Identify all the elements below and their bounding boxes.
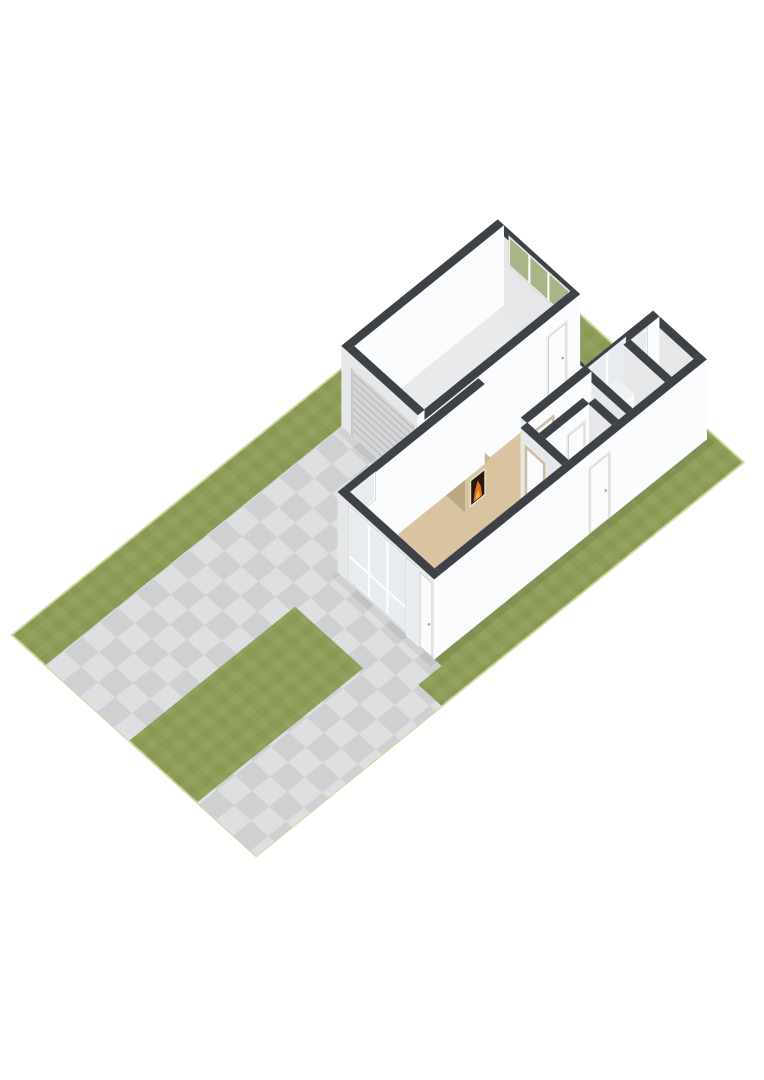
door-handle-icon — [428, 623, 431, 626]
window-mullion — [387, 542, 389, 613]
floorplan-svg — [0, 0, 764, 1080]
window-glass — [408, 561, 418, 644]
door-leaf — [420, 572, 432, 657]
window-mullion — [368, 525, 370, 596]
floorplan-3d-view — [0, 0, 764, 1080]
door-handle-icon — [604, 489, 607, 492]
garage-door-trim — [351, 369, 353, 436]
window-mullion — [548, 273, 550, 300]
door-handle-icon — [561, 357, 564, 360]
window-mullion — [529, 256, 531, 283]
